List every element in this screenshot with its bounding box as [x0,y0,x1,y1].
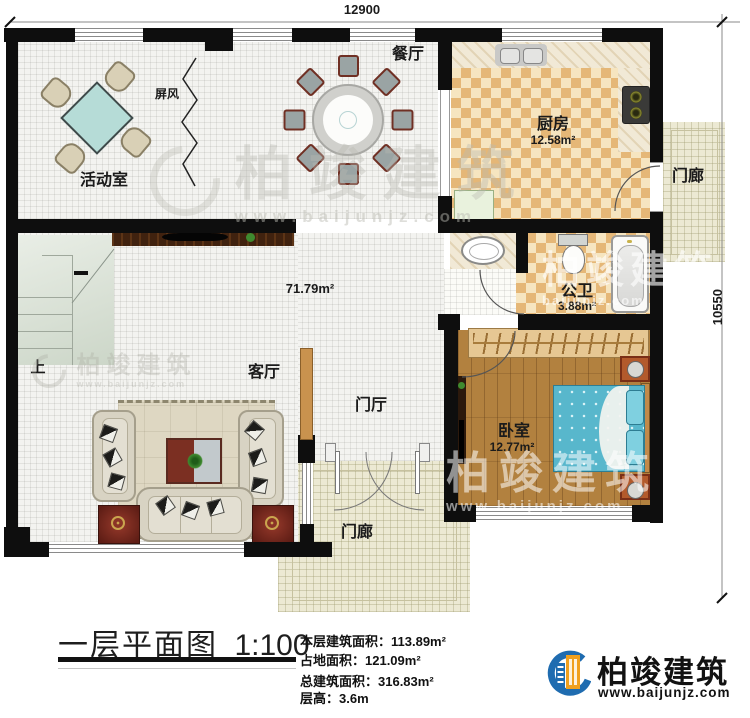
coffee-table [166,438,222,484]
watermark-company: 柏竣建筑 [542,252,718,290]
porch-right-border [671,130,718,255]
wall-segment [438,28,452,90]
stair-arrow [74,271,88,275]
watermark-company: 柏竣建筑 [76,354,196,378]
nightstand-lamp [627,361,644,378]
dining-chair [284,110,306,131]
wall-nook-divider [516,233,528,273]
window [350,28,415,42]
logo-icon [545,647,591,701]
wardrobe-rail [473,342,644,344]
wall-segment [415,28,502,42]
sink-basin [523,48,543,64]
watermark: 柏竣建筑 www.baijunjz.com [150,146,530,225]
stair-landing-line [42,255,72,256]
room-label-kitchen: 厨房 [537,116,569,134]
wall-notch [205,42,233,51]
dim-tick [5,17,15,27]
door-post [419,443,430,462]
window [75,28,143,42]
bedroom-plant [458,382,465,389]
watermark-website: baijunjz.com [542,294,718,307]
wall-living-right [300,524,314,546]
floor-hall [296,233,444,461]
stair-rail [72,255,73,365]
room-area-kitchen: 12.58m² [531,134,576,147]
tv [162,233,228,241]
room-label-activity: 活动室 [80,172,128,190]
wall-right [650,28,663,162]
window-living-right [302,463,313,524]
watermark: 柏竣建筑 www.baijunjz.com [446,452,658,514]
wall-living-bottom [244,542,332,557]
dining-table-center [339,111,357,129]
door-leaf [415,451,420,494]
kitchen-sink [495,44,547,66]
rug-mat [252,505,294,544]
kitchen-stove [622,86,650,124]
dining-chair [392,110,414,131]
sink-bowl [469,243,499,260]
room-label-hall: 门厅 [355,397,387,415]
room-label-screen: 屏风 [155,88,179,101]
room-label-bedroom: 卧室 [498,423,530,441]
mat-medallion [265,516,279,530]
wall-segment [143,28,233,42]
watermark-website: www.baijunjz.com [234,208,530,225]
stove-burner [630,91,642,103]
wall-left [6,28,18,545]
wardrobe [468,328,649,358]
mat-medallion [111,516,125,530]
watermark: 柏竣建筑 www.baijunjz.com [32,354,196,389]
opening-porch-door [650,162,663,212]
rug-mat [98,505,140,544]
room-label-porch-bottom: 门廊 [341,524,373,542]
door-leaf [335,451,340,494]
floor-nook-tile [444,269,516,315]
bathroom-sink [461,236,505,265]
company-logo: 柏竣建筑 www.baijunjz.com [545,645,745,705]
watermark-company: 柏竣建筑 [234,146,530,204]
pillow [251,477,268,494]
open-area-value: 71.79m² [286,282,334,296]
watermark: 柏竣建筑 baijunjz.com [542,252,718,307]
floor-plan-sheet: 活动室 屏风 餐厅 厨房 12.58m² 门廊 公卫 3.88m² 卧室 12.… [0,0,750,718]
dim-tick [717,593,727,603]
room-label-living: 客厅 [248,364,280,382]
watermark-website: www.baijunjz.com [446,499,658,514]
room-label-porch-right: 门廊 [672,168,704,186]
bathtub-faucet [627,240,632,243]
title-underline [58,657,296,662]
wall-partition-tan [300,348,313,440]
stats-line: 层高：3.6m [300,688,369,707]
wall-bedroom-top [438,314,460,330]
dimension-top: 12900 [344,3,380,17]
window [502,28,602,42]
stove-burner [630,107,642,119]
table-plant [187,453,203,469]
porch-bottom-border [292,470,457,601]
watermark-website: www.baijunjz.com [76,380,196,389]
wall-living-bottom [4,542,49,557]
dim-tick [717,17,727,27]
stats-line: 本层建筑面积：113.89m² [300,631,446,650]
dining-chair [338,55,359,77]
wall-bedroom-top [518,314,663,330]
watermark-company: 柏竣建筑 [446,452,658,496]
staircase [18,235,114,365]
room-label-dining: 餐厅 [392,46,424,64]
window [233,28,292,42]
watermark-logo-icon [25,347,73,395]
window-living [49,544,244,555]
bed-pillow [626,390,644,425]
logo-website: www.baijunjz.com [598,685,731,700]
stats-line: 占地面积：121.09m² [300,650,421,669]
nightstand [620,356,650,382]
wall-segment [292,28,350,42]
title-underline-thin [58,668,296,669]
kitchen-counter-top [451,42,650,70]
plant [246,233,255,242]
sink-basin [500,48,520,64]
watermark-logo-icon [136,132,235,231]
